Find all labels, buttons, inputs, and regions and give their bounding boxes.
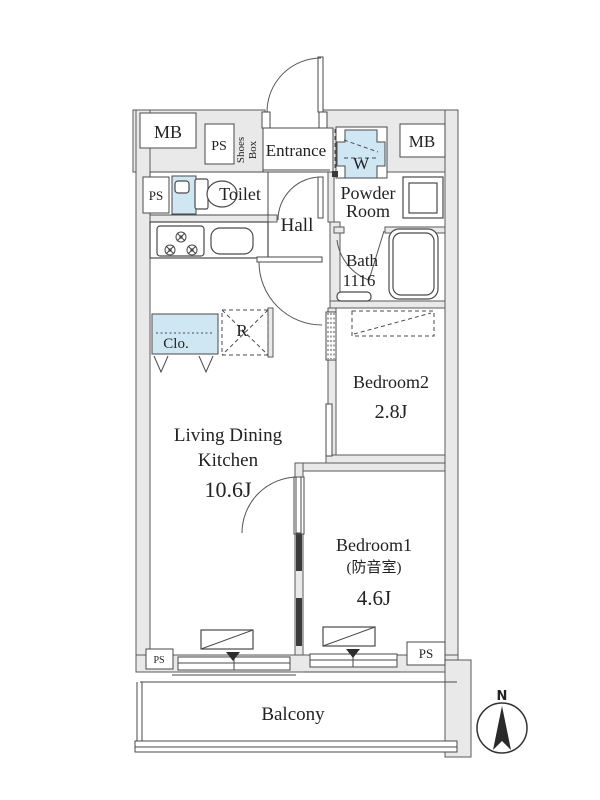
wall-bath-top-left <box>334 227 344 233</box>
powder-room-label: Powder <box>341 183 396 203</box>
balcony-label: Balcony <box>261 704 325 725</box>
floor-plan-page: N MB PS MB Shoes Box Entrance W Toilet P… <box>0 0 600 800</box>
shoes-box-label: Shoes <box>235 137 247 163</box>
wall-bedroom1-top <box>303 463 445 471</box>
hall-door-leaf <box>318 177 323 218</box>
closet-label: Clo. <box>163 336 188 352</box>
kitchen-sink <box>211 228 253 254</box>
bath-label: Bath <box>346 251 379 270</box>
wall-bath-left <box>330 222 340 302</box>
toilet-label: Toilet <box>219 184 261 204</box>
ps-mid-left-label: PS <box>149 188 163 203</box>
wall-hall-stub <box>268 215 277 222</box>
kitchen <box>150 222 268 258</box>
mb-left-label: MB <box>154 122 182 142</box>
wall-bedroom2-top <box>330 301 445 308</box>
bedroom2-label: Bedroom2 <box>353 372 429 392</box>
ps-bottom-left-label: PS <box>153 655 164 666</box>
bedroom1-note-label: (防音室) <box>347 559 402 576</box>
mb-right-label: MB <box>409 132 435 151</box>
bedroom1-size-label: 4.6J <box>357 586 391 610</box>
bath-step <box>337 292 371 301</box>
powder-room-label: Room <box>346 201 390 221</box>
bedroom2-sliding-door <box>326 404 332 456</box>
entrance-door-leaf <box>318 57 323 112</box>
ldk-door-leaf <box>257 257 322 262</box>
bedroom1-label: Bedroom1 <box>336 535 412 555</box>
wall-toilet-bottom <box>150 215 268 222</box>
ps-top-label: PS <box>211 139 227 154</box>
floor-plan: N MB PS MB Shoes Box Entrance W Toilet P… <box>0 0 600 800</box>
compass-north-label: N <box>497 689 508 704</box>
shoes-box-label: Box <box>247 140 259 159</box>
ldk-label: Kitchen <box>198 450 259 471</box>
washer-label: W <box>353 154 370 173</box>
fridge-label: R <box>236 321 248 340</box>
entrance-label: Entrance <box>266 141 326 160</box>
ldk-label: Living Dining <box>174 425 283 446</box>
ldk-size-label: 10.6J <box>204 477 252 502</box>
background <box>0 0 600 800</box>
ps-bottom-right-label: PS <box>419 646 433 661</box>
bedroom1-door-leaf <box>296 477 301 533</box>
hall-label: Hall <box>281 215 314 236</box>
entrance-frame-left <box>262 112 270 128</box>
wall-fridge-stub <box>268 308 273 357</box>
entrance-frame-right <box>319 112 327 128</box>
toilet-tank <box>195 179 208 209</box>
bedroom2-size-label: 2.8J <box>375 401 408 423</box>
wall-powder-left <box>328 172 334 222</box>
powder-vanity <box>403 177 443 218</box>
bath-size-label: 1116 <box>343 271 376 290</box>
wall-right <box>445 110 458 662</box>
